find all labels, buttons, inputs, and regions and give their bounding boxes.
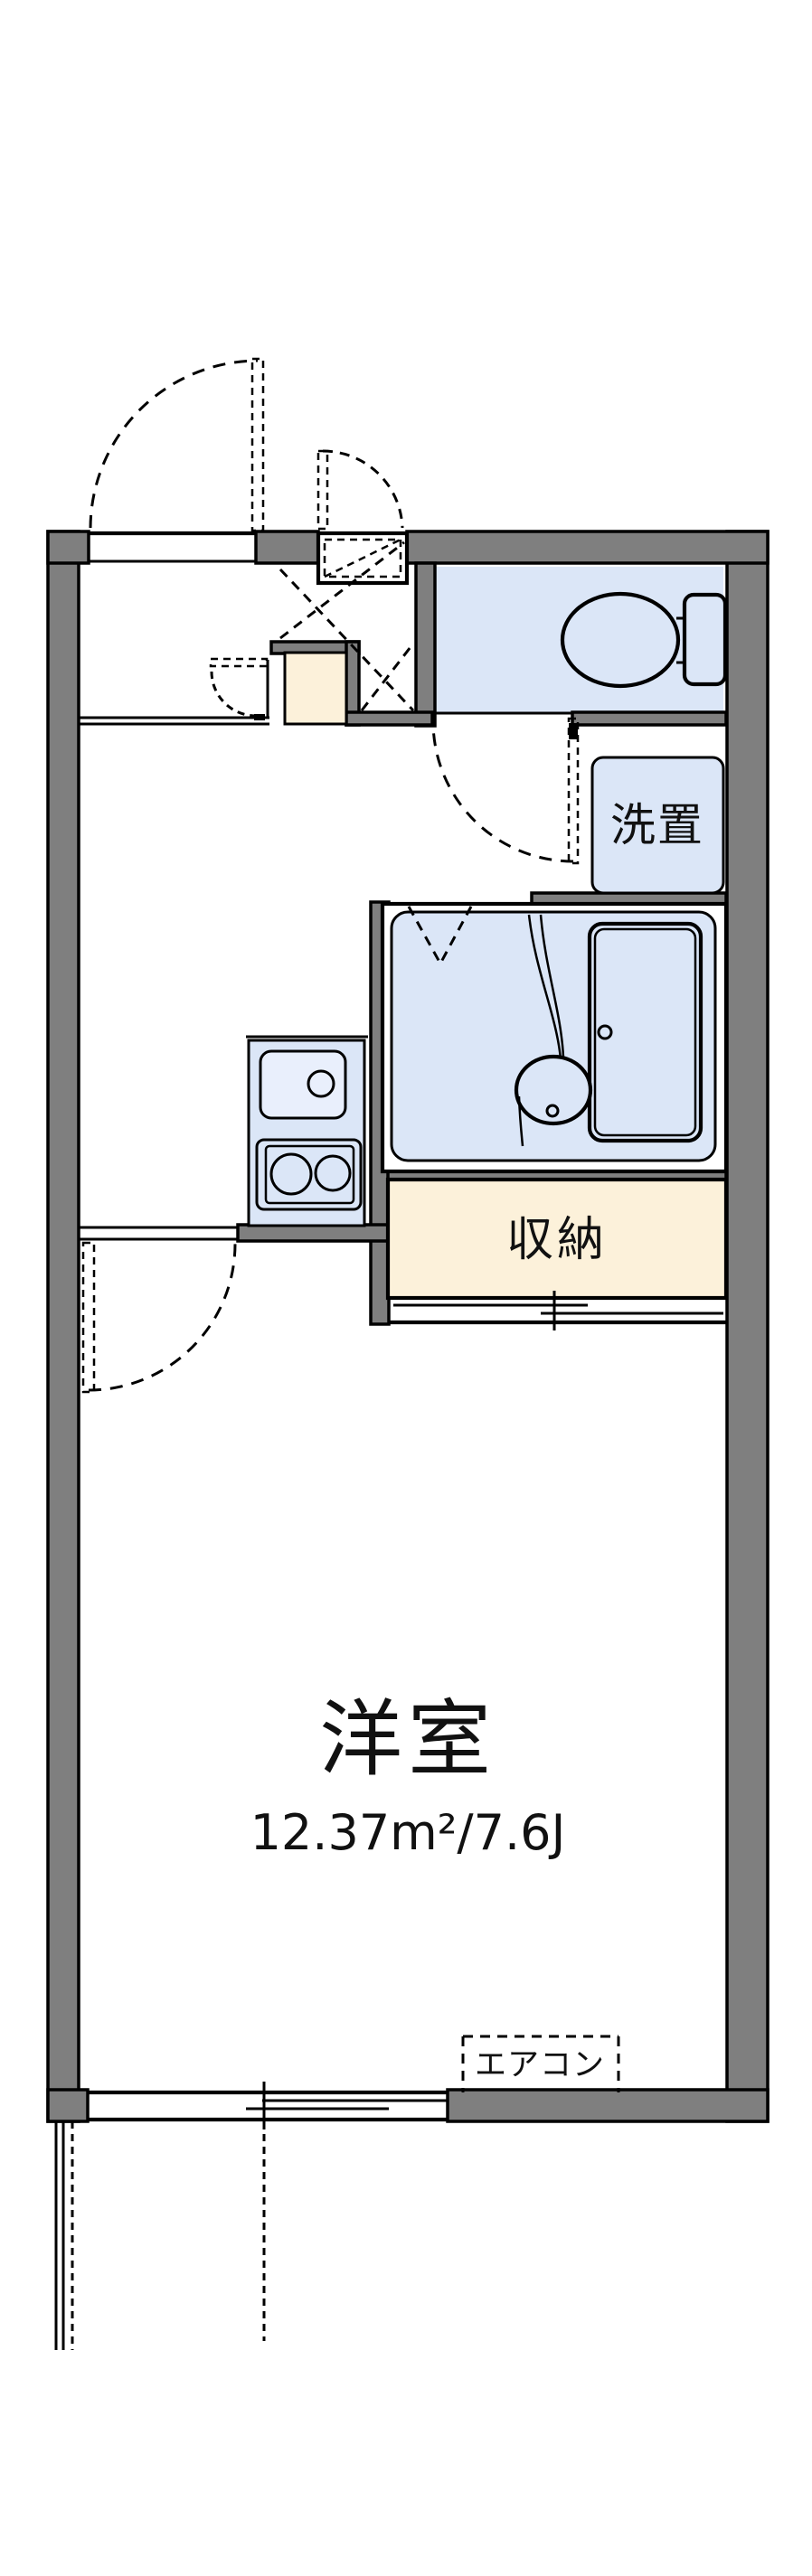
washbasin — [516, 1057, 590, 1123]
storage-label: 収納 — [506, 1213, 608, 1267]
wall-left — [48, 531, 79, 2121]
floor-plan: 洗置 収納 — [0, 0, 812, 2576]
bathtub — [590, 924, 701, 1141]
entrance-closet-door-swing — [323, 451, 402, 528]
room-area-label: 12.37m²/7.6J — [250, 1804, 566, 1861]
washroom-door-swing — [433, 722, 573, 861]
washroom-door-stub — [569, 723, 578, 739]
wall-top-2 — [256, 531, 318, 563]
wall-right — [727, 531, 768, 2121]
hall-door-leaf — [211, 659, 267, 666]
boundary-lines — [56, 2121, 264, 2350]
toilet — [562, 594, 725, 686]
bathroom — [382, 904, 726, 1171]
entrance-closet-door-leaf — [318, 451, 327, 529]
room-label: 洋室 — [319, 1691, 496, 1788]
floor-plan-page: 洗置 収納 — [0, 0, 812, 2576]
entrance-step-box — [285, 653, 346, 724]
toilet-tank — [685, 595, 725, 684]
wall-bottom-left — [48, 2090, 88, 2121]
hall-door-swing — [212, 672, 256, 716]
window-bottom — [88, 2082, 448, 2129]
washroom-door-leaf — [569, 719, 578, 863]
storage-closet: 収納 — [388, 1180, 727, 1330]
wall-top-1 — [48, 531, 89, 563]
washer-label: 洗置 — [610, 799, 704, 851]
kitchen — [249, 1040, 364, 1226]
aircon-unit: エアコン — [463, 2036, 618, 2092]
wall-bottom-right — [448, 2090, 768, 2121]
wall-top-3 — [407, 531, 768, 563]
wall-entry-bottom — [346, 712, 432, 725]
wall-toilet-bottom — [572, 712, 726, 725]
aircon-label: エアコン — [475, 2047, 605, 2083]
wall-kitchen-room — [238, 1225, 389, 1241]
entrance-door-swing — [90, 361, 258, 528]
toilet-bowl — [562, 594, 678, 686]
entrance-door-leaf — [252, 359, 263, 531]
room-door-swing — [89, 1244, 235, 1390]
room-door-leaf — [83, 1243, 94, 1392]
wall-toilet-left — [416, 563, 435, 726]
